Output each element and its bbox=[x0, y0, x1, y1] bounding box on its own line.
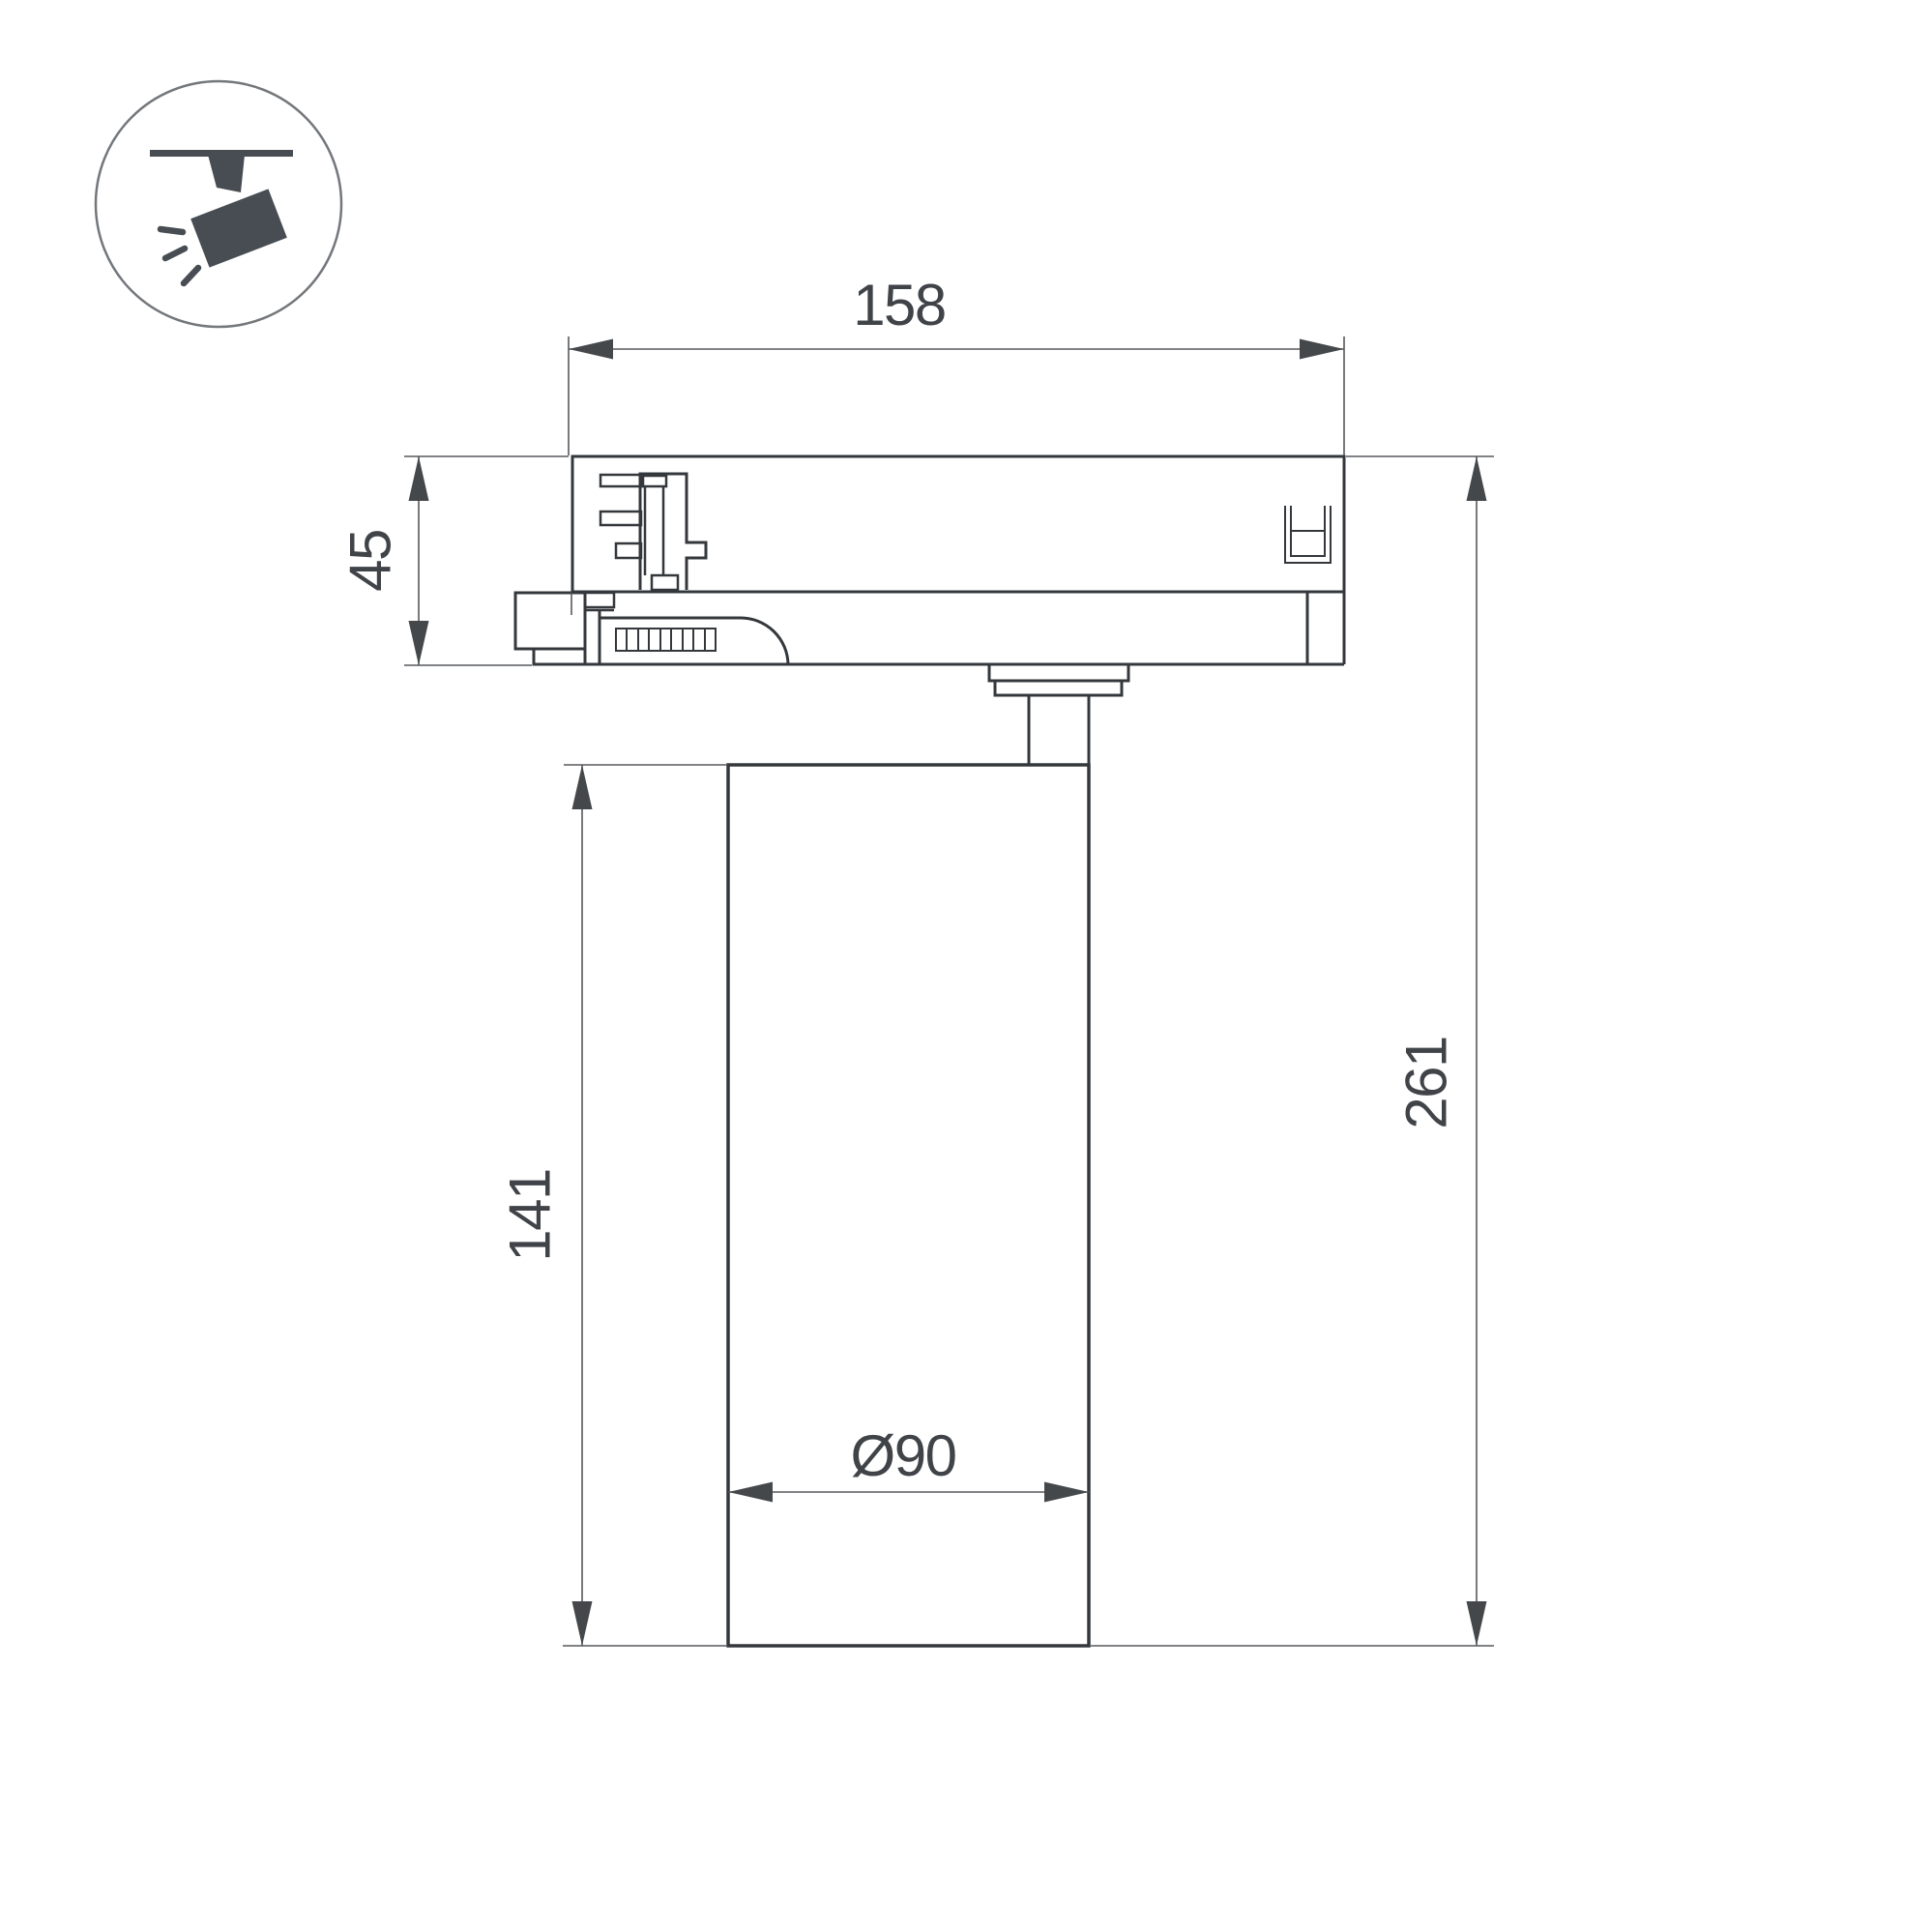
arrow-up bbox=[409, 456, 429, 501]
dimension-drawing-svg: 158 45 141 261 Ø90 bbox=[0, 0, 1932, 1932]
arrow-left bbox=[569, 339, 613, 360]
dimension-label-track-width: 158 bbox=[853, 273, 946, 337]
dimension-body-diameter: Ø90 bbox=[728, 1423, 1089, 1503]
dimension-label-body-height: 141 bbox=[498, 1169, 563, 1262]
connector-contact-2 bbox=[600, 512, 641, 525]
arrow-left bbox=[728, 1482, 773, 1503]
latch-foot bbox=[534, 649, 585, 664]
dimension-label-body-diameter: Ø90 bbox=[851, 1423, 956, 1488]
track-spotlight-icon bbox=[96, 81, 341, 327]
connector-contact-1 bbox=[600, 475, 643, 486]
track-adapter-outline bbox=[515, 456, 1344, 765]
dimension-label-total-height: 261 bbox=[1394, 1037, 1459, 1129]
adapter-ground-clip bbox=[1285, 506, 1331, 563]
drawing-canvas: 158 45 141 261 Ø90 bbox=[0, 0, 1932, 1932]
adapter-lower-housing bbox=[515, 592, 1344, 664]
latch-box bbox=[515, 593, 585, 649]
lamp-body-outline bbox=[728, 765, 1089, 1646]
latch-tab bbox=[585, 593, 614, 607]
grip-ridges bbox=[616, 629, 716, 651]
arrow-right bbox=[1044, 1482, 1089, 1503]
dimension-label-adapter-height: 45 bbox=[338, 530, 403, 592]
arrow-up bbox=[572, 765, 593, 809]
connector-screw-cap bbox=[642, 476, 666, 486]
arrow-down bbox=[1467, 1601, 1487, 1646]
icon-light-ray-1 bbox=[161, 229, 183, 232]
icon-circle bbox=[96, 81, 341, 327]
arrow-up bbox=[1467, 456, 1487, 501]
adapter-connector-block bbox=[600, 474, 706, 590]
adapter-main-box bbox=[572, 456, 1344, 592]
connector-contact-3 bbox=[616, 543, 641, 558]
flange-step-2 bbox=[995, 681, 1122, 695]
connector-screw-foot bbox=[652, 575, 678, 590]
connector-screw-shaft bbox=[645, 486, 663, 575]
flange-step-1 bbox=[989, 664, 1128, 681]
swivel-flange bbox=[989, 664, 1128, 765]
arrow-down bbox=[572, 1601, 593, 1646]
neck-stem bbox=[1029, 695, 1089, 765]
dimension-total-height: 261 bbox=[1091, 456, 1494, 1646]
arrow-right bbox=[1300, 339, 1344, 360]
arrow-down bbox=[409, 621, 429, 665]
dimension-adapter-height: 45 bbox=[338, 456, 570, 665]
dimension-body-height: 141 bbox=[498, 765, 727, 1646]
dimension-track-width: 158 bbox=[569, 273, 1344, 455]
